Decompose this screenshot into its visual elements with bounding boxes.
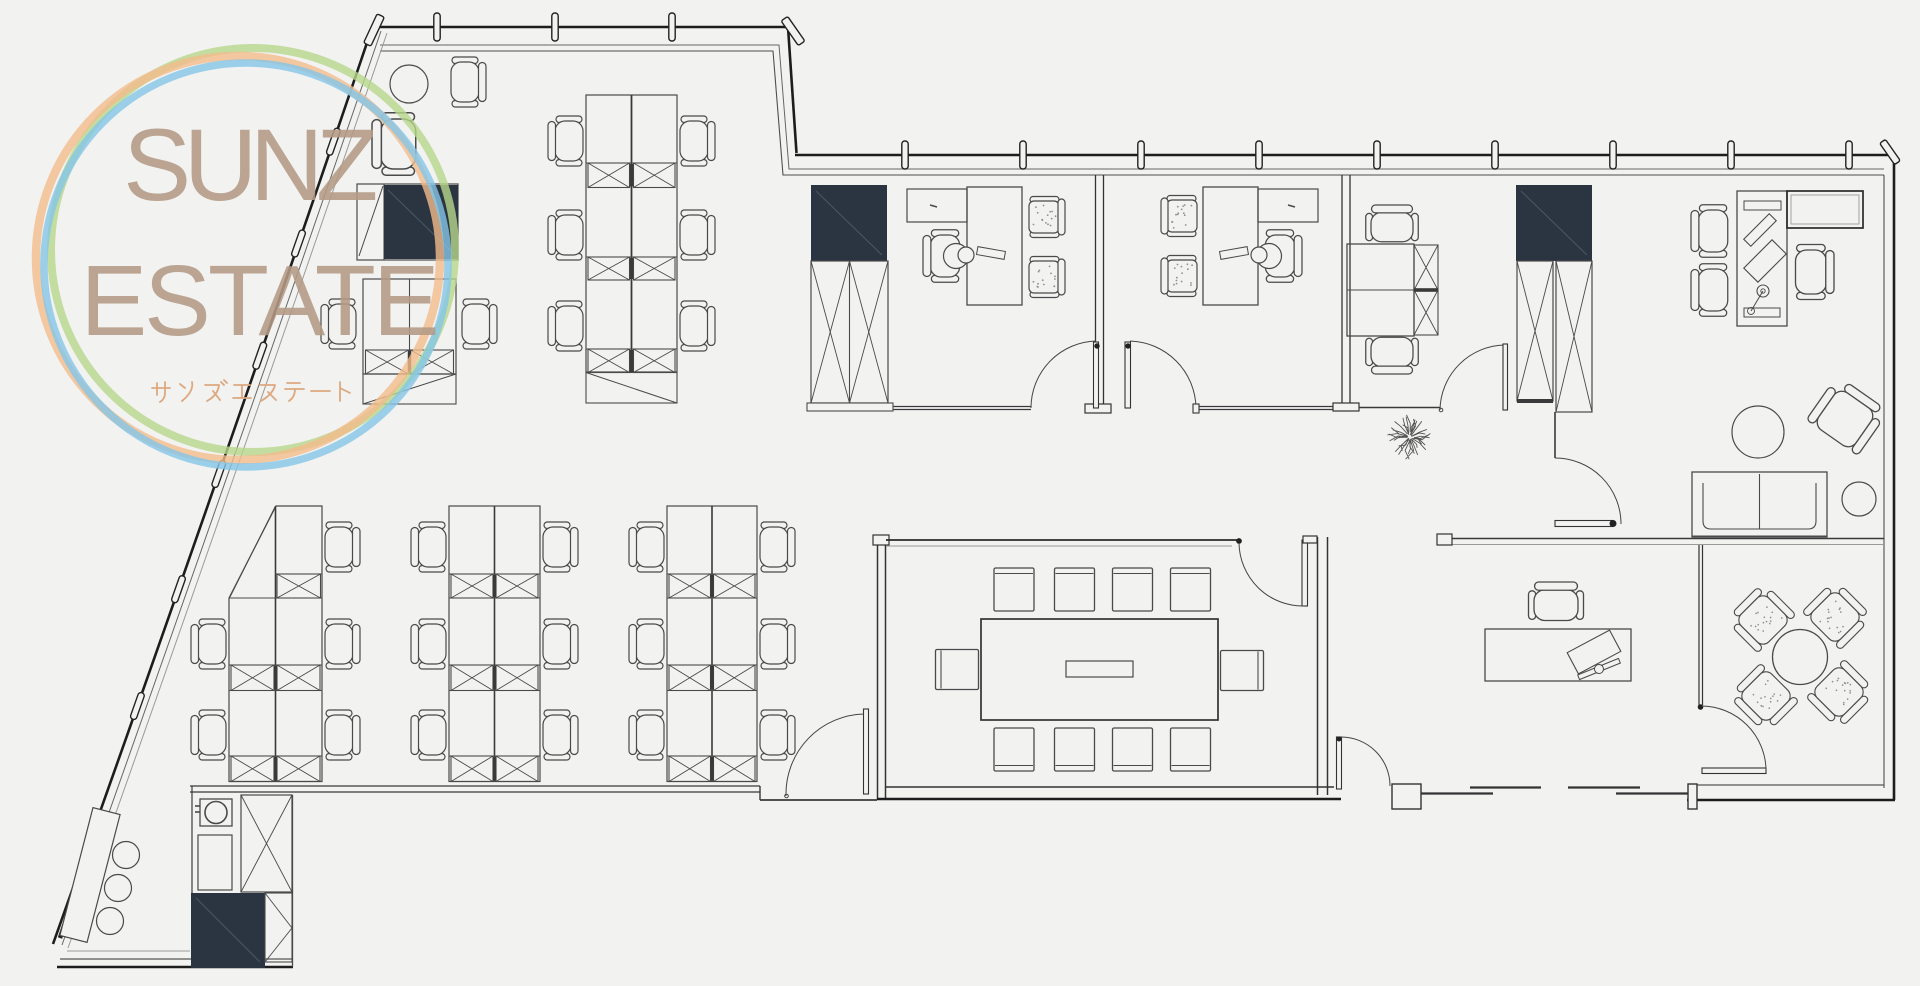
svg-text:SUNZ: SUNZ <box>123 108 376 222</box>
svg-text:ESTATE: ESTATE <box>80 245 436 357</box>
